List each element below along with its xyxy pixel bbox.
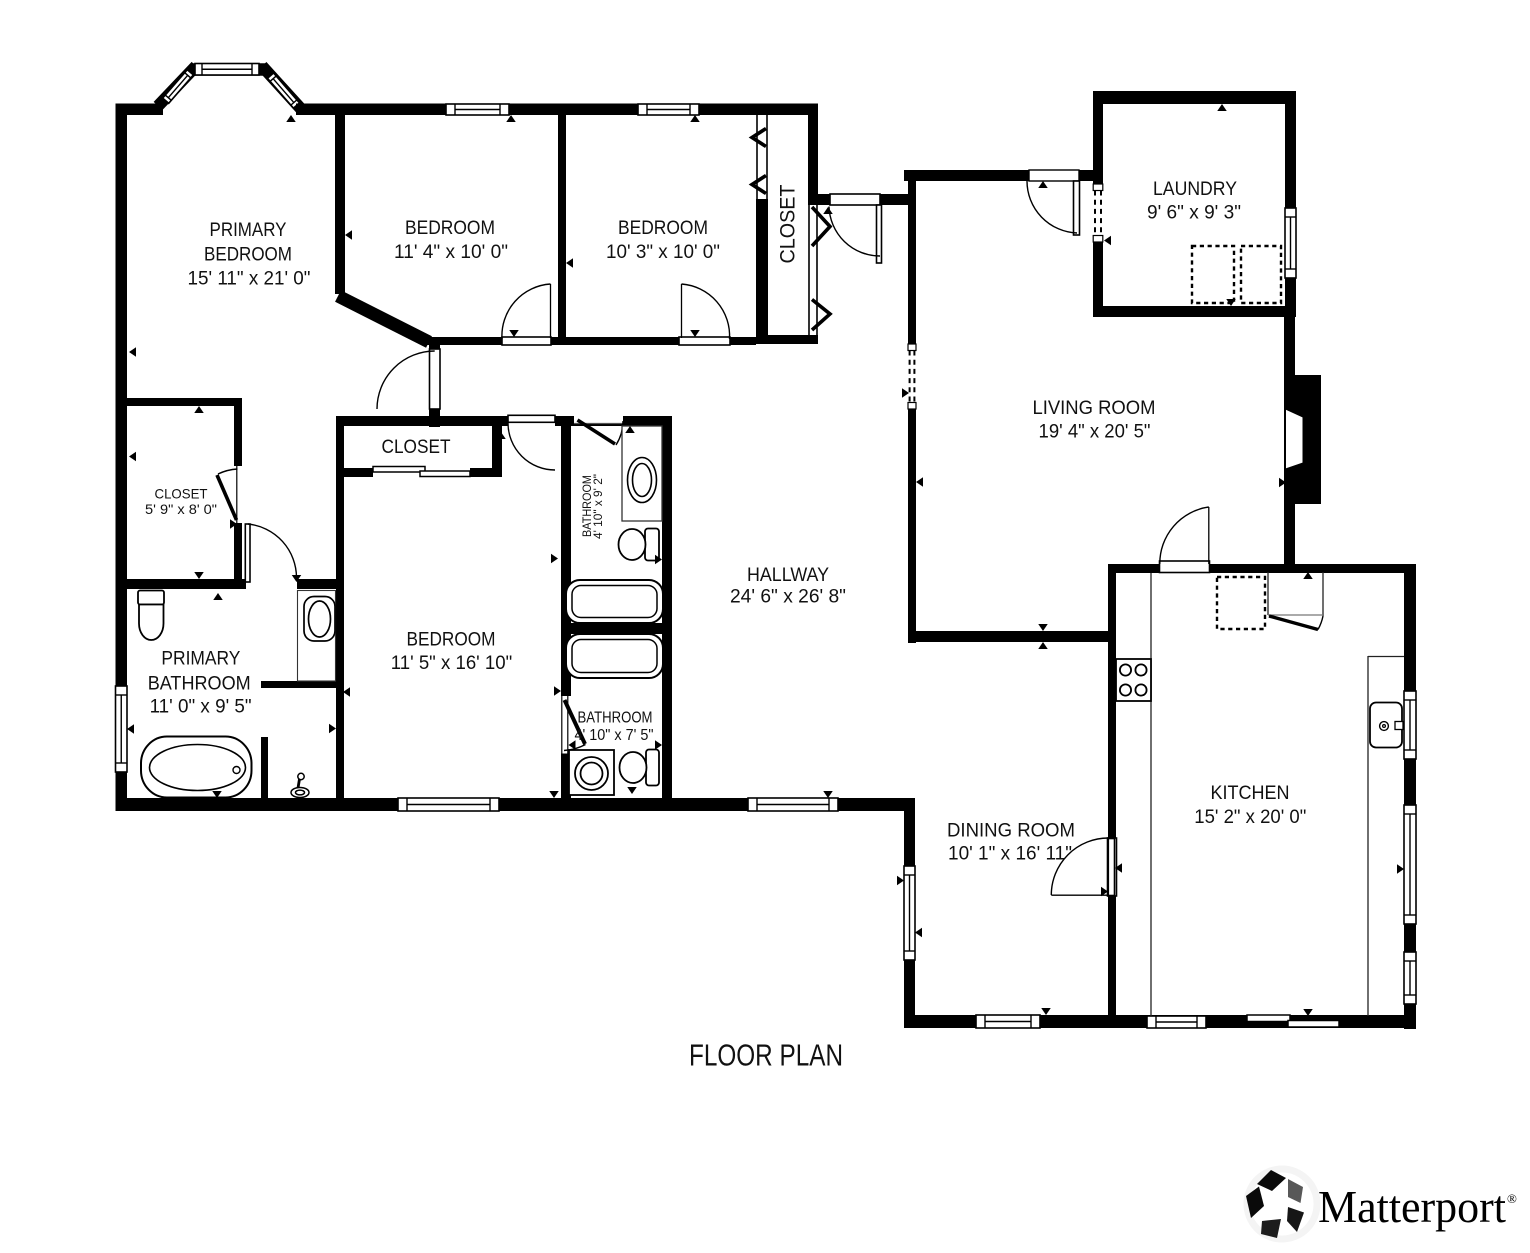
svg-text:10' 3" x 10' 0": 10' 3" x 10' 0"	[606, 241, 720, 263]
svg-text:5' 9" x 8' 0": 5' 9" x 8' 0"	[145, 501, 217, 517]
svg-text:BEDROOM: BEDROOM	[204, 244, 292, 266]
svg-text:19' 4" x 20' 5": 19' 4" x 20' 5"	[1039, 421, 1151, 443]
svg-text:KITCHEN: KITCHEN	[1211, 782, 1290, 804]
svg-text:®: ®	[1507, 1191, 1517, 1206]
svg-text:LIVING ROOM: LIVING ROOM	[1033, 397, 1156, 419]
svg-text:15' 2" x 20' 0": 15' 2" x 20' 0"	[1194, 806, 1306, 828]
svg-text:DINING ROOM: DINING ROOM	[947, 820, 1075, 842]
svg-text:BATHROOM: BATHROOM	[148, 673, 251, 695]
svg-text:PRIMARY: PRIMARY	[161, 648, 240, 670]
svg-text:4' 10" x 7' 5": 4' 10" x 7' 5"	[575, 727, 654, 744]
svg-text:Matterport: Matterport	[1318, 1181, 1506, 1232]
svg-text:BEDROOM: BEDROOM	[407, 629, 496, 651]
svg-text:10' 1" x 16' 11": 10' 1" x 16' 11"	[948, 843, 1072, 865]
svg-text:24' 6" x 26' 8": 24' 6" x 26' 8"	[730, 586, 846, 608]
svg-text:FLOOR PLAN: FLOOR PLAN	[689, 1038, 843, 1073]
svg-text:LAUNDRY: LAUNDRY	[1153, 178, 1237, 200]
svg-text:11' 5" x 16' 10": 11' 5" x 16' 10"	[391, 652, 513, 674]
svg-text:HALLWAY: HALLWAY	[747, 564, 829, 586]
svg-text:CLOSET: CLOSET	[155, 486, 208, 502]
svg-text:15' 11" x 21' 0": 15' 11" x 21' 0"	[188, 268, 311, 290]
svg-text:BEDROOM: BEDROOM	[618, 217, 708, 239]
svg-text:BEDROOM: BEDROOM	[405, 217, 495, 239]
svg-text:9' 6" x 9' 3": 9' 6" x 9' 3"	[1147, 202, 1241, 224]
svg-text:CLOSET: CLOSET	[777, 184, 800, 263]
svg-text:4' 10" x 9' 2": 4' 10" x 9' 2"	[591, 474, 605, 539]
svg-text:PRIMARY: PRIMARY	[210, 219, 287, 241]
svg-text:11' 0" x 9' 5": 11' 0" x 9' 5"	[150, 696, 252, 718]
svg-text:BATHROOM: BATHROOM	[578, 709, 653, 726]
svg-text:CLOSET: CLOSET	[382, 436, 451, 458]
svg-text:11' 4" x 10' 0": 11' 4" x 10' 0"	[394, 241, 508, 263]
